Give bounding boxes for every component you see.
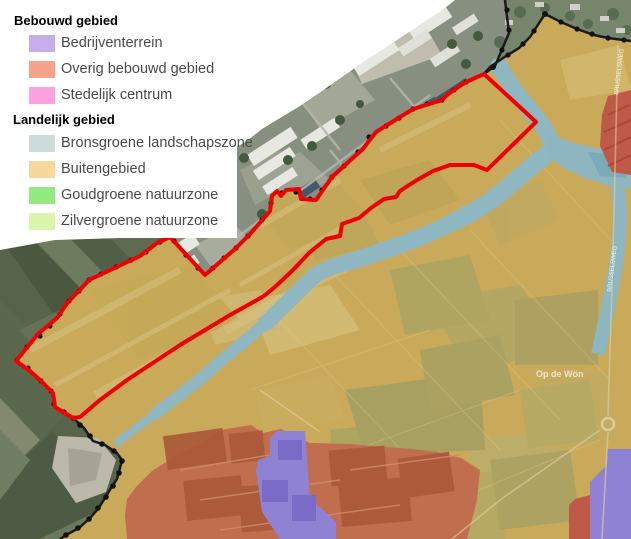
svg-text:Op de Wön: Op de Wön — [536, 369, 584, 379]
